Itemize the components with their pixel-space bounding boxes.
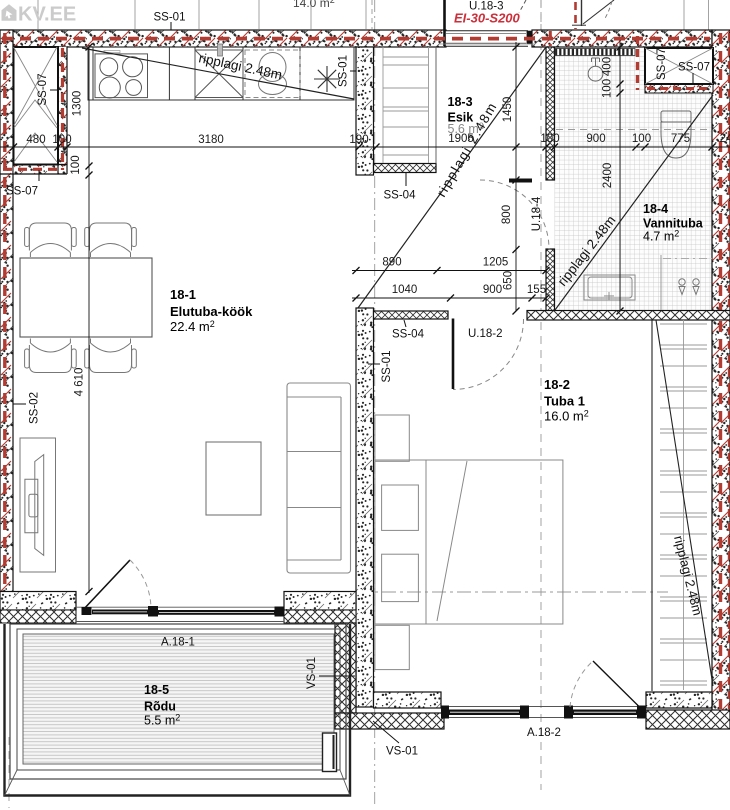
svg-text:SS-07: SS-07 [656,48,668,80]
svg-text:Elutuba-köök: Elutuba-köök [170,304,253,319]
svg-text:22.4 m2: 22.4 m2 [170,319,215,334]
svg-text:SS-01: SS-01 [381,351,393,383]
svg-text:18-4: 18-4 [643,202,668,216]
svg-text:SS-04: SS-04 [384,190,417,202]
svg-text:A.18-2: A.18-2 [527,727,561,739]
svg-text:100: 100 [602,79,614,98]
svg-text:900: 900 [483,284,502,296]
svg-text:16.0 m2: 16.0 m2 [544,409,589,424]
svg-text:SS-07: SS-07 [678,62,710,74]
svg-text:18-1: 18-1 [170,287,196,302]
svg-text:400: 400 [602,57,614,76]
svg-text:100: 100 [52,134,71,146]
svg-text:18-3: 18-3 [448,95,473,109]
svg-text:4.7 m2: 4.7 m2 [643,229,679,244]
svg-text:900: 900 [586,133,605,145]
svg-text:SS-01: SS-01 [154,12,186,24]
svg-text:Rõdu: Rõdu [144,700,176,714]
svg-text:A.18-1: A.18-1 [161,637,195,649]
svg-text:2400: 2400 [602,163,614,189]
svg-text:14.0 m2: 14.0 m2 [293,0,335,10]
svg-text:1205: 1205 [483,257,509,269]
svg-text:18-2: 18-2 [544,377,570,392]
svg-text:155: 155 [527,284,546,296]
svg-text:SS-01: SS-01 [338,55,350,87]
svg-text:U.18-2: U.18-2 [468,328,503,340]
svg-text:SS-02: SS-02 [29,392,41,424]
svg-text:650: 650 [503,271,515,290]
svg-text:4 610: 4 610 [74,368,86,397]
svg-text:1450: 1450 [502,97,514,123]
svg-text:1300: 1300 [72,91,84,117]
svg-text:1040: 1040 [392,284,418,296]
svg-text:190: 190 [349,134,368,146]
svg-text:24: 24 [720,133,730,145]
svg-text:100: 100 [632,133,651,145]
svg-text:775: 775 [671,133,690,145]
svg-text:18-5: 18-5 [144,683,169,697]
svg-text:KV.EE: KV.EE [18,4,76,26]
svg-text:890: 890 [382,257,401,269]
svg-text:800: 800 [501,205,513,224]
svg-text:480: 480 [26,134,45,146]
svg-text:ripplagi 2.48m: ripplagi 2.48m [671,534,705,617]
svg-text:EI-30-S200: EI-30-S200 [454,11,521,26]
svg-text:3180: 3180 [198,134,224,146]
svg-text:Tuba 1: Tuba 1 [544,394,585,409]
svg-text:100: 100 [540,133,559,145]
svg-text:SS-07: SS-07 [6,186,38,198]
svg-text:VS-01: VS-01 [386,746,418,758]
svg-text:SS-04: SS-04 [392,329,425,341]
svg-text:5.6 m2: 5.6 m2 [448,121,484,136]
svg-text:VS-01: VS-01 [306,657,318,689]
svg-text:SS-07: SS-07 [37,74,49,106]
svg-text:100: 100 [70,155,82,174]
svg-text:U.18-4: U.18-4 [531,196,543,231]
svg-text:5.5 m2: 5.5 m2 [144,713,180,728]
